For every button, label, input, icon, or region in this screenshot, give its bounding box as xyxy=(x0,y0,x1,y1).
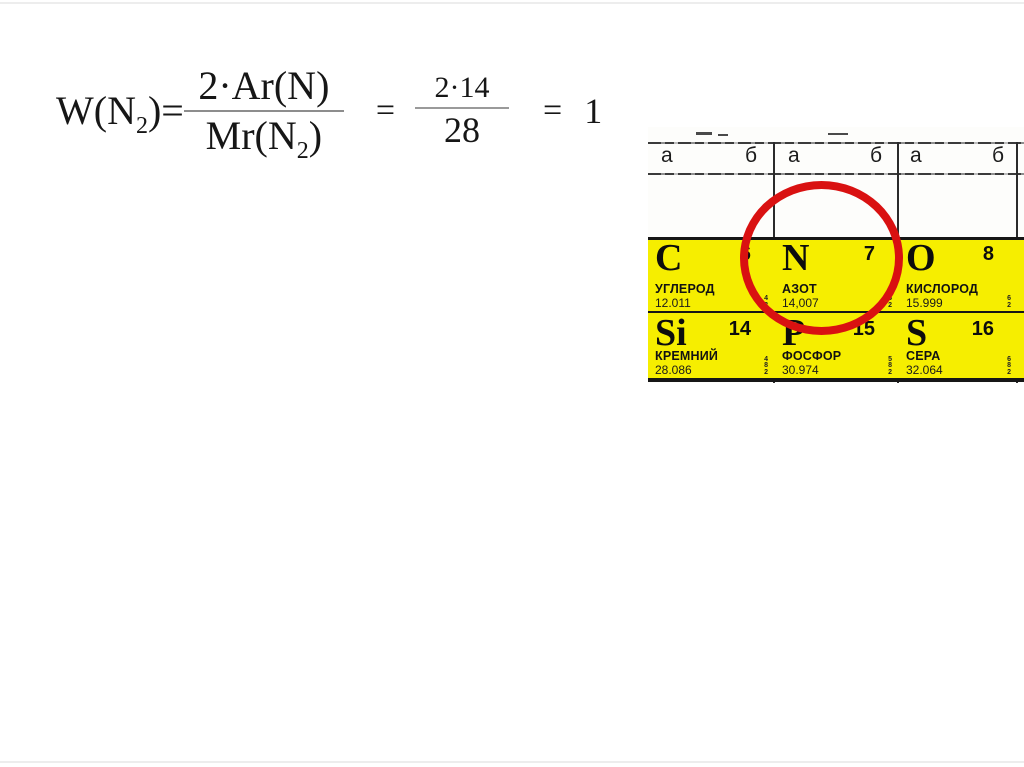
table-top-border xyxy=(648,142,1024,144)
element-name: КИСЛОРОД xyxy=(906,282,978,296)
slide-bottom-edge xyxy=(0,761,1024,763)
element-symbol: S xyxy=(906,316,927,350)
fraction-numerator: 2·14 xyxy=(435,72,490,104)
equals-sign: = xyxy=(376,92,395,130)
element-name: ФОСФОР xyxy=(782,349,841,363)
scan-artifact xyxy=(696,132,712,135)
mass-fraction-formula: W(N2)= 2·Ar(N) Mr(N2) = 2·14 28 = 1 xyxy=(56,55,602,167)
element-symbol: Si xyxy=(655,316,687,350)
atomic-mass: 28.086 xyxy=(655,363,692,377)
atomic-number: 16 xyxy=(972,318,994,341)
atomic-mass: 30.974 xyxy=(782,363,819,377)
element-cell-sulfur: S 16 СЕРА 32.064 682 xyxy=(899,315,1016,378)
scan-artifact xyxy=(718,134,728,136)
fraction-bar xyxy=(415,107,509,109)
group-header-a: а xyxy=(661,145,673,166)
atomic-mass: 15.999 xyxy=(906,296,943,310)
red-highlight-circle xyxy=(740,181,903,335)
atomic-number: 14 xyxy=(729,318,751,341)
electron-shells: 682 xyxy=(1007,357,1011,377)
formula-lhs: W(N2)= xyxy=(56,91,184,131)
element-cell-oxygen: O 8 КИСЛОРОД 15.999 62 xyxy=(899,240,1016,311)
electron-shells: 482 xyxy=(764,357,768,377)
element-symbol: C xyxy=(655,241,682,275)
element-name: УГЛЕРОД xyxy=(655,282,715,296)
element-name: КРЕМНИЙ xyxy=(655,349,718,363)
equals-sign: = xyxy=(543,92,562,130)
atomic-mass: 32.064 xyxy=(906,363,943,377)
group-header-b: б xyxy=(870,145,882,166)
subscript: 2 xyxy=(136,113,148,139)
element-symbol: O xyxy=(906,241,936,275)
group-header-b: б xyxy=(992,145,1004,166)
electron-shells: 582 xyxy=(888,357,892,377)
group-header-a: а xyxy=(788,145,800,166)
atomic-number: 8 xyxy=(983,243,994,266)
presentation-slide: W(N2)= 2·Ar(N) Mr(N2) = 2·14 28 = 1 а б … xyxy=(0,0,1024,767)
scan-artifact xyxy=(828,133,848,135)
table-bottom-border xyxy=(648,378,1024,382)
fraction-bar xyxy=(184,110,344,112)
element-cell-silicon: Si 14 КРЕМНИЙ 28.086 482 xyxy=(648,315,773,378)
subscript: 2 xyxy=(297,138,309,164)
element-name: СЕРА xyxy=(906,349,940,363)
fraction-numerator: 2·Ar(N) xyxy=(198,65,329,107)
fraction-denominator: 28 xyxy=(444,112,480,150)
slide-top-edge xyxy=(0,2,1024,4)
electron-shells: 62 xyxy=(1007,296,1011,309)
fraction-numeric: 2·14 28 xyxy=(415,72,509,149)
fraction-denominator: Mr(N2) xyxy=(206,115,322,157)
group-header-a: а xyxy=(910,145,922,166)
header-bottom-border xyxy=(648,173,1024,175)
formula-result: 1 xyxy=(584,90,602,132)
group-header-b: б xyxy=(745,145,757,166)
fraction-ar-over-mr: 2·Ar(N) Mr(N2) xyxy=(184,65,344,157)
atomic-mass: 12.011 xyxy=(655,296,691,310)
